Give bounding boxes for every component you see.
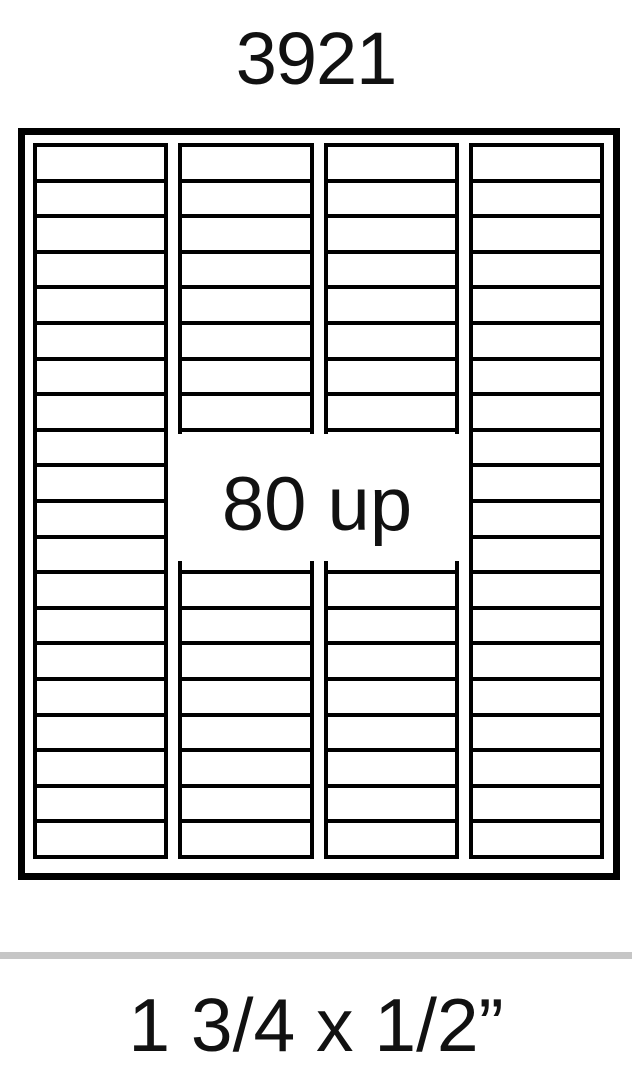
label-cell (473, 432, 600, 468)
label-count-overlay: 80 up (169, 434, 465, 561)
label-column (33, 143, 168, 859)
label-cell (37, 823, 164, 855)
label-cell (473, 325, 600, 361)
label-cell (182, 823, 309, 855)
label-cell (328, 325, 455, 361)
label-cell (182, 147, 309, 183)
label-cell (37, 681, 164, 717)
label-cell (37, 325, 164, 361)
label-cell (473, 147, 600, 183)
label-cell (37, 752, 164, 788)
label-cell (473, 574, 600, 610)
label-cell (182, 254, 309, 290)
label-cell (473, 254, 600, 290)
label-cell (182, 361, 309, 397)
label-cell (473, 503, 600, 539)
label-cell (37, 361, 164, 397)
label-cell (182, 717, 309, 753)
label-cell (328, 254, 455, 290)
label-cell (328, 717, 455, 753)
label-cell (328, 823, 455, 855)
label-template-page: 3921 80 up 1 3/4 x 1/2” (0, 0, 632, 1090)
label-cell (328, 788, 455, 824)
label-cell (37, 645, 164, 681)
label-cell (328, 610, 455, 646)
label-cell (473, 681, 600, 717)
label-cell (328, 147, 455, 183)
label-cell (182, 218, 309, 254)
label-cell (473, 396, 600, 432)
label-cell (182, 788, 309, 824)
label-cell (37, 183, 164, 219)
label-count-text: 80 up (222, 467, 412, 543)
label-size-text: 1 3/4 x 1/2” (0, 988, 632, 1063)
label-cell (37, 610, 164, 646)
label-cell (473, 610, 600, 646)
label-cell (37, 432, 164, 468)
label-cell (473, 539, 600, 575)
label-cell (473, 467, 600, 503)
label-cell (328, 183, 455, 219)
label-column (469, 143, 604, 859)
label-cell (37, 289, 164, 325)
label-cell (328, 752, 455, 788)
label-cell (37, 254, 164, 290)
label-cell (37, 788, 164, 824)
label-cell (328, 289, 455, 325)
label-cell (37, 503, 164, 539)
label-cell (182, 752, 309, 788)
label-cell (182, 574, 309, 610)
label-cell (473, 289, 600, 325)
label-cell (328, 361, 455, 397)
label-cell (473, 183, 600, 219)
label-cell (328, 396, 455, 432)
label-cell (473, 717, 600, 753)
label-cell (182, 183, 309, 219)
label-cell (328, 681, 455, 717)
label-cell (473, 823, 600, 855)
label-cell (182, 610, 309, 646)
label-cell (37, 717, 164, 753)
label-cell (37, 539, 164, 575)
label-cell (37, 218, 164, 254)
label-cell (37, 147, 164, 183)
label-cell (473, 788, 600, 824)
label-cell (37, 396, 164, 432)
label-cell (182, 325, 309, 361)
label-cell (328, 645, 455, 681)
label-cell (328, 574, 455, 610)
label-cell (328, 218, 455, 254)
label-cell (473, 218, 600, 254)
label-cell (473, 361, 600, 397)
label-cell (473, 645, 600, 681)
label-cell (182, 289, 309, 325)
section-divider-line (0, 952, 632, 959)
label-cell (473, 752, 600, 788)
label-cell (182, 396, 309, 432)
label-cell (182, 681, 309, 717)
label-cell (37, 467, 164, 503)
label-cell (37, 574, 164, 610)
product-code-title: 3921 (0, 22, 632, 96)
label-cell (182, 645, 309, 681)
